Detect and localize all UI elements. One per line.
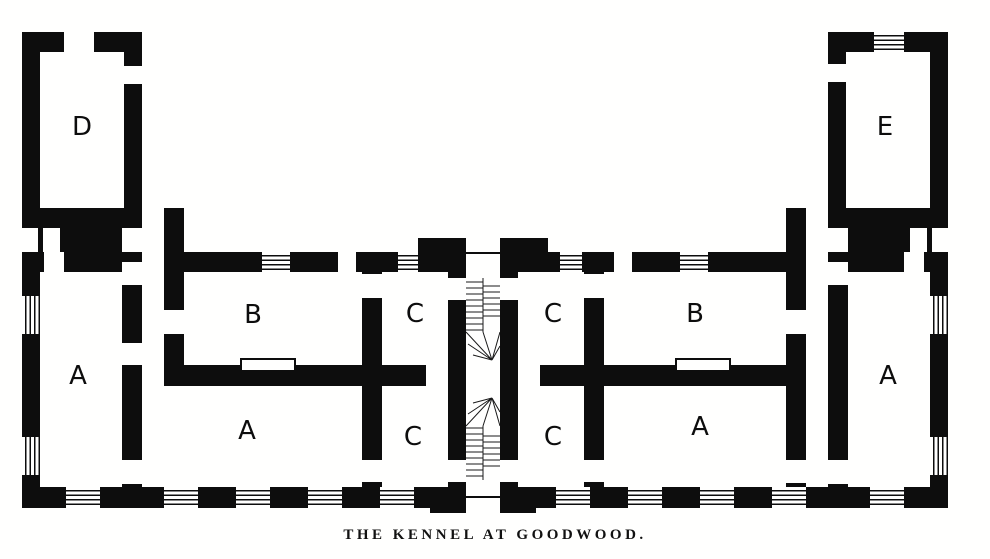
wall-segment — [806, 487, 870, 508]
window — [308, 487, 342, 508]
door-opening — [828, 64, 846, 82]
window — [874, 32, 904, 52]
room-label-a-west-end: A — [69, 361, 87, 391]
threshold-line — [466, 252, 500, 254]
wall-segment — [848, 228, 910, 252]
door-opening — [164, 310, 184, 334]
window — [262, 252, 290, 272]
wall-segment — [734, 487, 772, 508]
wall-segment — [290, 252, 338, 272]
room-label-a-lower-east: A — [691, 412, 709, 442]
window — [236, 487, 270, 508]
window — [930, 296, 948, 334]
window — [870, 487, 904, 508]
wall-segment — [662, 487, 700, 508]
wall-segment — [904, 487, 948, 508]
entrance-pier — [430, 487, 466, 513]
wall-segment — [924, 252, 948, 272]
window — [680, 252, 708, 272]
window — [380, 487, 414, 508]
wall-segment — [930, 52, 948, 228]
room-label-c-lower-east: C — [544, 422, 562, 452]
window — [560, 252, 582, 272]
wall-segment — [828, 32, 846, 228]
room-label-b-east: B — [686, 299, 704, 329]
recess-slot — [675, 358, 731, 372]
wall-segment — [22, 252, 44, 272]
wall-segment — [198, 487, 236, 508]
wall-segment — [164, 228, 184, 252]
wall-segment — [38, 228, 43, 252]
room-label-c-upper-east: C — [544, 299, 562, 329]
wall-segment — [22, 52, 40, 228]
window — [22, 437, 40, 475]
wall-segment — [786, 208, 806, 228]
entrance-pier — [500, 487, 536, 513]
wall-segment — [356, 252, 398, 272]
door-opening — [448, 460, 466, 482]
caption: THE KENNEL AT GOODWOOD. — [343, 527, 646, 544]
room-label-e: E — [877, 112, 893, 142]
wall-segment — [124, 32, 142, 228]
wall-segment — [342, 487, 380, 508]
door-opening — [64, 32, 94, 52]
wall-segment — [927, 228, 932, 252]
wall-segment — [448, 272, 466, 487]
wall-segment — [828, 208, 948, 228]
window — [930, 437, 948, 475]
window — [164, 487, 198, 508]
entrance-pier — [418, 238, 466, 272]
threshold-line — [466, 496, 500, 498]
door-opening — [786, 310, 806, 334]
door-opening — [828, 460, 848, 484]
room-label-a-lower-west: A — [238, 416, 256, 446]
window — [556, 487, 590, 508]
window — [772, 487, 806, 508]
room-label-b-west: B — [244, 300, 262, 330]
wall-segment — [786, 252, 806, 487]
door-opening — [124, 66, 142, 84]
wall-segment — [582, 252, 614, 272]
window — [398, 252, 418, 272]
room-label-d: D — [72, 112, 92, 142]
door-opening — [122, 460, 142, 484]
staircase-upper — [466, 274, 500, 364]
wall-segment — [164, 208, 184, 228]
room-label-c-lower-west: C — [404, 422, 422, 452]
wall-segment — [590, 487, 628, 508]
wall-segment — [100, 487, 164, 508]
wall-segment — [60, 228, 122, 252]
door-opening — [584, 460, 604, 482]
floor-plan: D E A B C C B A A C C A THE KENNEL AT GO… — [0, 0, 990, 559]
door-opening — [500, 460, 518, 482]
wall-segment — [270, 487, 308, 508]
window — [22, 296, 40, 334]
entrance-pier — [500, 238, 548, 272]
wall-segment — [22, 208, 142, 228]
wall-segment — [500, 272, 518, 487]
window — [700, 487, 734, 508]
wall-segment — [632, 252, 680, 272]
door-opening — [362, 460, 382, 482]
door-opening — [122, 262, 142, 285]
door-opening — [828, 262, 848, 285]
door-opening — [362, 274, 382, 298]
wall-segment — [540, 365, 786, 386]
room-label-c-upper-west: C — [406, 299, 424, 329]
wall-segment — [22, 487, 66, 508]
door-opening — [786, 460, 806, 483]
window — [628, 487, 662, 508]
window — [66, 487, 100, 508]
door-opening — [584, 274, 604, 298]
staircase-lower — [466, 392, 500, 484]
room-label-a-east-end: A — [879, 361, 897, 391]
recess-slot — [240, 358, 296, 372]
wall-segment — [786, 228, 806, 252]
door-opening — [448, 278, 466, 300]
door-opening — [122, 343, 142, 365]
door-opening — [500, 278, 518, 300]
